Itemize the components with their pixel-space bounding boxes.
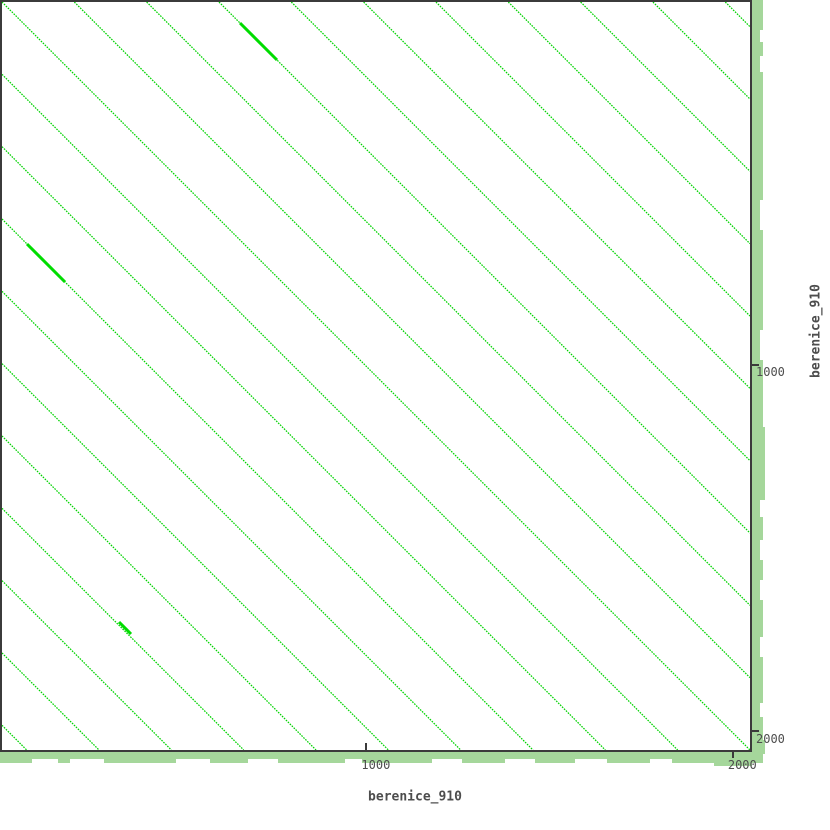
- bar-edge-notch: [176, 759, 210, 763]
- bar-edge-notch: [760, 500, 763, 517]
- x-tick-label-2000: 2000: [728, 759, 757, 771]
- y-axis-label: berenice_910: [809, 284, 824, 378]
- bar-edge-notch: [760, 703, 763, 717]
- bar-edge-notch: [760, 580, 763, 600]
- bar-edge-notch: [760, 330, 763, 360]
- bar-edge-notch: [760, 540, 763, 560]
- plot-area: [0, 0, 752, 752]
- x-tick-label-1000: 1000: [361, 759, 390, 771]
- bar-edge-notch: [650, 759, 672, 763]
- bar-edge-notch: [575, 759, 607, 763]
- bar-edge-notch: [70, 759, 104, 763]
- bar-edge-notch: [505, 759, 535, 763]
- x-tick-1000: [365, 743, 367, 750]
- x-axis-label: berenice_910: [368, 790, 462, 805]
- bar-edge-notch: [432, 759, 462, 763]
- bar-edge-bump: [763, 427, 765, 500]
- y-tick-label-2000: 2000: [756, 733, 785, 745]
- bar-edge-notch: [345, 759, 362, 763]
- bar-edge-notch: [760, 637, 763, 657]
- bar-edge-notch: [760, 56, 763, 72]
- x-tick-2000: [732, 750, 734, 758]
- y-tick-label-1000: 1000: [756, 366, 785, 378]
- dotplot-viewport: 1000 2000 1000 2000 berenice_910 berenic…: [0, 0, 830, 830]
- bar-edge-notch: [32, 759, 58, 763]
- bar-edge-notch: [760, 200, 763, 230]
- bar-edge-notch: [760, 30, 763, 42]
- bar-edge-notch: [248, 759, 278, 763]
- alignment-lines-svg: [2, 2, 750, 750]
